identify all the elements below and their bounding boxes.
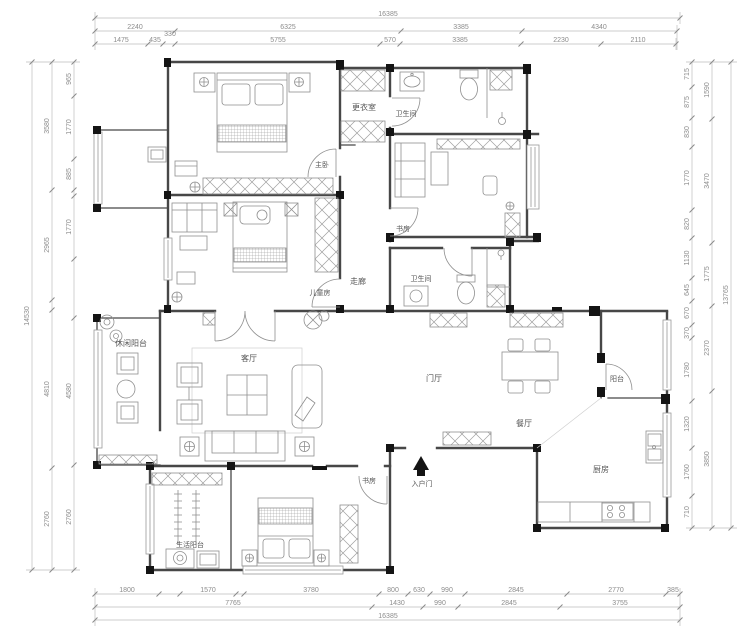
- toilet-tank: [457, 275, 475, 282]
- bedroom-wardrobe: [340, 505, 358, 563]
- laundry-cabinet: [152, 473, 222, 485]
- bench: [175, 161, 197, 176]
- balcony-sill: [99, 455, 157, 464]
- dim: 800: [387, 587, 399, 594]
- master-bedroom-furniture: [148, 73, 310, 192]
- dim: 3470: [704, 173, 711, 189]
- floor-plan-canvas: 主卧 更衣室 卫生间 书房 走廊 儿童房 卫生间 休闲阳台 客厅 门厅 阳台 餐…: [0, 0, 750, 636]
- room-label-master: 主卧: [315, 160, 329, 169]
- bath1-cabinet: [490, 70, 512, 90]
- room-label-study-bottom: 书房: [362, 476, 376, 485]
- dim: 2845: [501, 600, 517, 607]
- dim: 4340: [591, 24, 607, 31]
- dim: 570: [384, 37, 396, 44]
- dim: 370: [684, 327, 691, 339]
- room-label-living: 客厅: [241, 353, 257, 363]
- kitchen-sink: [646, 431, 663, 463]
- dim: 2760: [66, 509, 73, 525]
- dim: 1590: [704, 82, 711, 98]
- room-label-bath1: 卫生间: [396, 109, 417, 118]
- study-shelf: [437, 139, 520, 149]
- study-sofa: [395, 143, 425, 197]
- dim: 1800: [119, 587, 135, 594]
- dining-table: [502, 352, 558, 380]
- dim: 2845: [508, 587, 524, 594]
- room-label-corridor: 走廊: [350, 276, 366, 286]
- desk: [431, 152, 448, 185]
- dim: 670: [684, 307, 691, 319]
- dim: 1775: [704, 266, 711, 282]
- room-label-kitchen: 厨房: [593, 464, 609, 474]
- nightstand: [194, 73, 215, 92]
- dim: 2770: [608, 587, 624, 594]
- balcony-chair: [117, 353, 138, 374]
- dim: 385: [667, 587, 679, 594]
- study-cabinet: [505, 213, 520, 237]
- kitchen-fixtures: [538, 431, 663, 522]
- stool: [177, 272, 195, 284]
- toilet-tank: [460, 70, 478, 78]
- balcony-chair: [117, 402, 138, 423]
- dim: 1780: [684, 362, 691, 378]
- dim: 1770: [66, 119, 73, 135]
- foyer-cabinet-right: [510, 313, 563, 327]
- dim: 3385: [452, 37, 468, 44]
- bottom-bedroom-furniture: [242, 466, 329, 566]
- dim: 1770: [66, 219, 73, 235]
- vanity: [404, 286, 428, 306]
- dim: 2230: [553, 37, 569, 44]
- dim: 4810: [44, 381, 51, 397]
- dim: 3580: [44, 118, 51, 134]
- dim-top-total: 16385: [378, 11, 398, 18]
- kids-wardrobe: [315, 198, 338, 272]
- dim: 1760: [684, 464, 691, 480]
- dim: 990: [441, 587, 453, 594]
- dim: 2240: [127, 24, 143, 31]
- bed-blanket: [259, 508, 312, 524]
- laundry-balcony-fixtures: [166, 490, 219, 568]
- dim: 710: [684, 506, 691, 518]
- dim: 330: [164, 31, 176, 38]
- foyer-cabinet-left: [430, 313, 467, 327]
- dim: 3385: [453, 24, 469, 31]
- dim: 7765: [225, 600, 241, 607]
- dim: 830: [684, 126, 691, 138]
- dim: 990: [434, 600, 446, 607]
- chair: [483, 176, 497, 195]
- bed-blanket: [218, 125, 286, 142]
- pillow: [263, 539, 284, 558]
- dressing-cabinet-top: [341, 70, 385, 91]
- living-double-door: [215, 311, 275, 341]
- dim: 6325: [280, 24, 296, 31]
- room-label-study-top: 书房: [396, 224, 410, 233]
- dim: 4580: [66, 383, 73, 399]
- tv-icon: [312, 466, 327, 470]
- dim: 2370: [704, 340, 711, 356]
- stove: [602, 503, 633, 520]
- dining-chair: [535, 339, 550, 351]
- room-label-leisure-balcony: 休闲阳台: [115, 338, 147, 348]
- sofa: [205, 431, 285, 461]
- dim: 630: [413, 587, 425, 594]
- dining-chair: [508, 381, 523, 393]
- dim: 1475: [113, 37, 129, 44]
- dim-right-total: 13765: [723, 285, 730, 305]
- nightstand: [289, 73, 310, 92]
- shoe-cabinet: [552, 307, 562, 311]
- bath2-door: [444, 248, 472, 276]
- plant-icon: [100, 315, 114, 329]
- dim-bottom-total: 16385: [378, 613, 398, 620]
- balcony-table: [117, 380, 135, 398]
- room-label-foyer: 门厅: [426, 373, 442, 383]
- floor-boundary: [537, 398, 601, 448]
- living-room-furniture: [177, 311, 329, 461]
- room-label-dressing: 更衣室: [352, 102, 376, 112]
- entrance-label: 入户门: [412, 479, 433, 488]
- study-furniture: [395, 143, 514, 210]
- dim: 2965: [44, 237, 51, 253]
- shower-head-icon: [499, 118, 506, 125]
- dim: 1130: [684, 250, 691, 265]
- dim: 2110: [630, 37, 645, 44]
- dim: 3850: [704, 451, 711, 467]
- pillow: [222, 84, 250, 105]
- dining-cabinet: [443, 432, 491, 445]
- kids-table: [180, 236, 207, 250]
- shower-head-icon: [498, 250, 504, 256]
- dim: 965: [66, 73, 73, 85]
- dining-chair: [508, 339, 523, 351]
- room-label-bath2: 卫生间: [411, 274, 432, 283]
- master-wardrobe: [203, 178, 333, 194]
- toilet: [461, 78, 478, 100]
- room-label-balcony: 阳台: [610, 374, 624, 383]
- pillow: [289, 539, 310, 558]
- pillow: [240, 206, 270, 224]
- leisure-balcony-furniture: [100, 315, 138, 423]
- dim: 5755: [270, 37, 286, 44]
- room-label-laundry-balcony: 生活阳台: [176, 540, 204, 549]
- dim: 1570: [200, 587, 216, 594]
- floor-plan-page: 主卧 更衣室 卫生间 书房 走廊 儿童房 卫生间 休闲阳台 客厅 门厅 阳台 餐…: [0, 0, 750, 636]
- doors: [215, 98, 632, 504]
- dim: 1770: [684, 170, 691, 186]
- dim-left-total: 14530: [24, 306, 31, 326]
- dim: 885: [66, 168, 73, 180]
- kids-sofa: [172, 203, 217, 232]
- tv-cabinet: [203, 313, 215, 325]
- dim: 875: [684, 96, 691, 108]
- dim: 3755: [612, 600, 628, 607]
- dim: 1320: [684, 416, 691, 432]
- pillow: [255, 84, 283, 105]
- dim: 435: [149, 37, 161, 44]
- entrance-arrow-icon: [413, 456, 429, 476]
- dressing-cabinet-bottom: [341, 121, 385, 142]
- dim: 3780: [303, 587, 319, 594]
- dining-chair: [535, 381, 550, 393]
- kids-room-furniture: [172, 202, 298, 302]
- bath2-cabinet: [487, 285, 505, 307]
- bed-blanket: [234, 248, 286, 262]
- dim: 2760: [44, 511, 51, 527]
- dim: 645: [684, 284, 691, 296]
- room-label-kids: 儿童房: [310, 288, 331, 297]
- room-label-dining: 餐厅: [516, 419, 532, 428]
- dim: 715: [684, 68, 691, 80]
- toilet: [458, 282, 475, 304]
- dim: 820: [684, 218, 691, 230]
- dim: 1430: [389, 600, 405, 607]
